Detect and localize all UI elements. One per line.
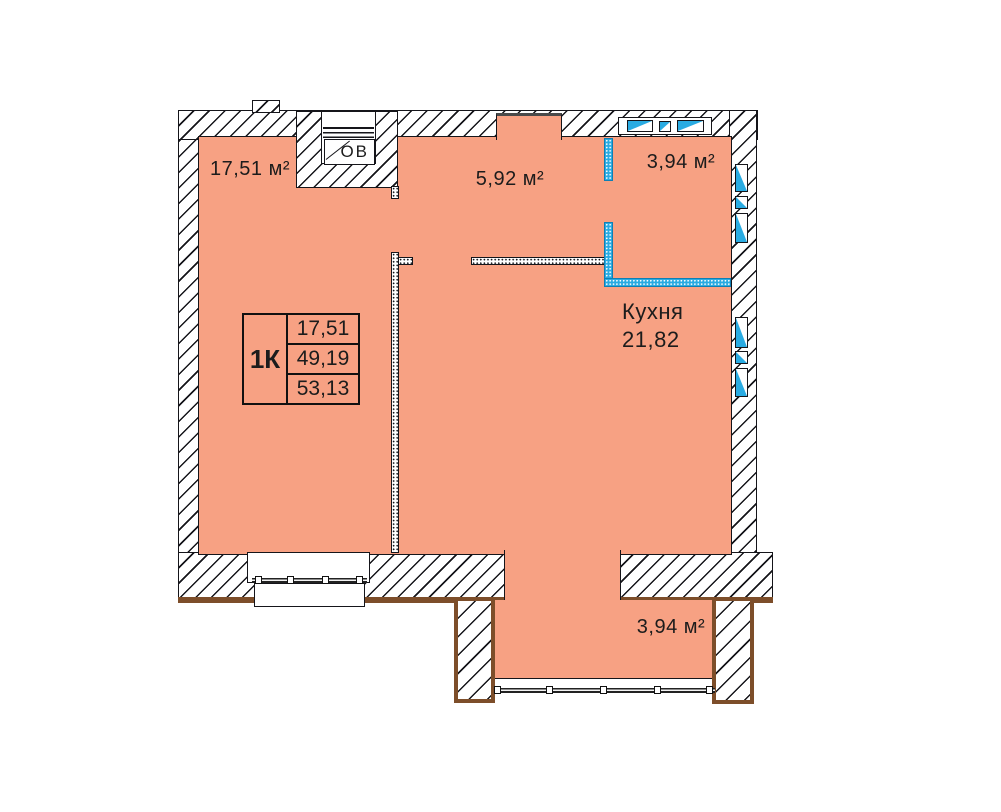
floor-balcony-doorway [504, 550, 621, 604]
wall-top-bump [252, 100, 280, 113]
label-hall-area: 5,92 м² [476, 168, 544, 191]
partition-entry-lower [604, 222, 613, 283]
label-kitchen-name: Кухня [622, 299, 683, 325]
window-glass [660, 122, 670, 131]
partition-entry-kitchen [604, 278, 731, 287]
label-balcony-area: 3,94 м² [637, 616, 705, 639]
window-glass [736, 165, 747, 191]
window-glass [736, 197, 747, 208]
wall-bottom-right [619, 552, 773, 602]
railing-clip [255, 576, 262, 584]
vent-shaft-box: ОВ [324, 139, 375, 165]
vent-grille [323, 127, 374, 138]
window-symbol [735, 213, 748, 243]
railing-clip [706, 686, 713, 694]
floor-balcony [491, 600, 715, 679]
window-symbol [677, 120, 704, 132]
floor-plan: ОВ 1К 17,51 49,19 53,13 17,51 м² 5,92 м² [0, 0, 1001, 812]
window-symbol [659, 121, 671, 132]
window-symbol [627, 120, 653, 132]
window-symbol [735, 368, 748, 397]
railing-clip [356, 576, 363, 584]
window-symbol [735, 196, 748, 209]
balcony-wall-right [712, 597, 754, 704]
partition-living-stub [391, 186, 399, 199]
apartment-legend: 1К 17,51 49,19 53,13 [242, 313, 360, 405]
railing-clip [654, 686, 661, 694]
legend-area: 49,19 [288, 345, 358, 375]
balcony-wall-left [454, 597, 495, 703]
window-symbol [735, 164, 748, 192]
floor-top-window-opening [496, 113, 562, 140]
partition-entry-upper [604, 138, 613, 181]
partition-hall-stub [398, 257, 413, 265]
window-living-railing [252, 578, 367, 583]
window-glass [736, 369, 747, 396]
legend-values: 17,51 49,19 53,13 [288, 315, 358, 403]
label-kitchen-area: 21,82 [622, 327, 680, 353]
legend-living-area: 17,51 [288, 315, 358, 345]
railing-clip [287, 576, 294, 584]
label-entry-area: 3,94 м² [647, 151, 715, 174]
window-glass [736, 214, 747, 242]
legend-apartment-type: 1К [244, 315, 288, 403]
window-glass [736, 318, 747, 347]
window-glass [736, 352, 747, 363]
window-glass [628, 121, 652, 131]
partition-living [391, 252, 399, 553]
balcony-railing [494, 688, 715, 693]
label-living-area: 17,51 м² [210, 158, 290, 181]
window-glass [678, 121, 703, 131]
window-symbol [735, 351, 748, 364]
window-symbol [735, 317, 748, 348]
railing-clip [322, 576, 329, 584]
window-living-sill [254, 583, 365, 607]
legend-total-area: 53,13 [288, 375, 358, 403]
railing-clip [546, 686, 553, 694]
railing-clip [494, 686, 501, 694]
partition-hall-kitchen [471, 257, 606, 265]
railing-clip [600, 686, 607, 694]
